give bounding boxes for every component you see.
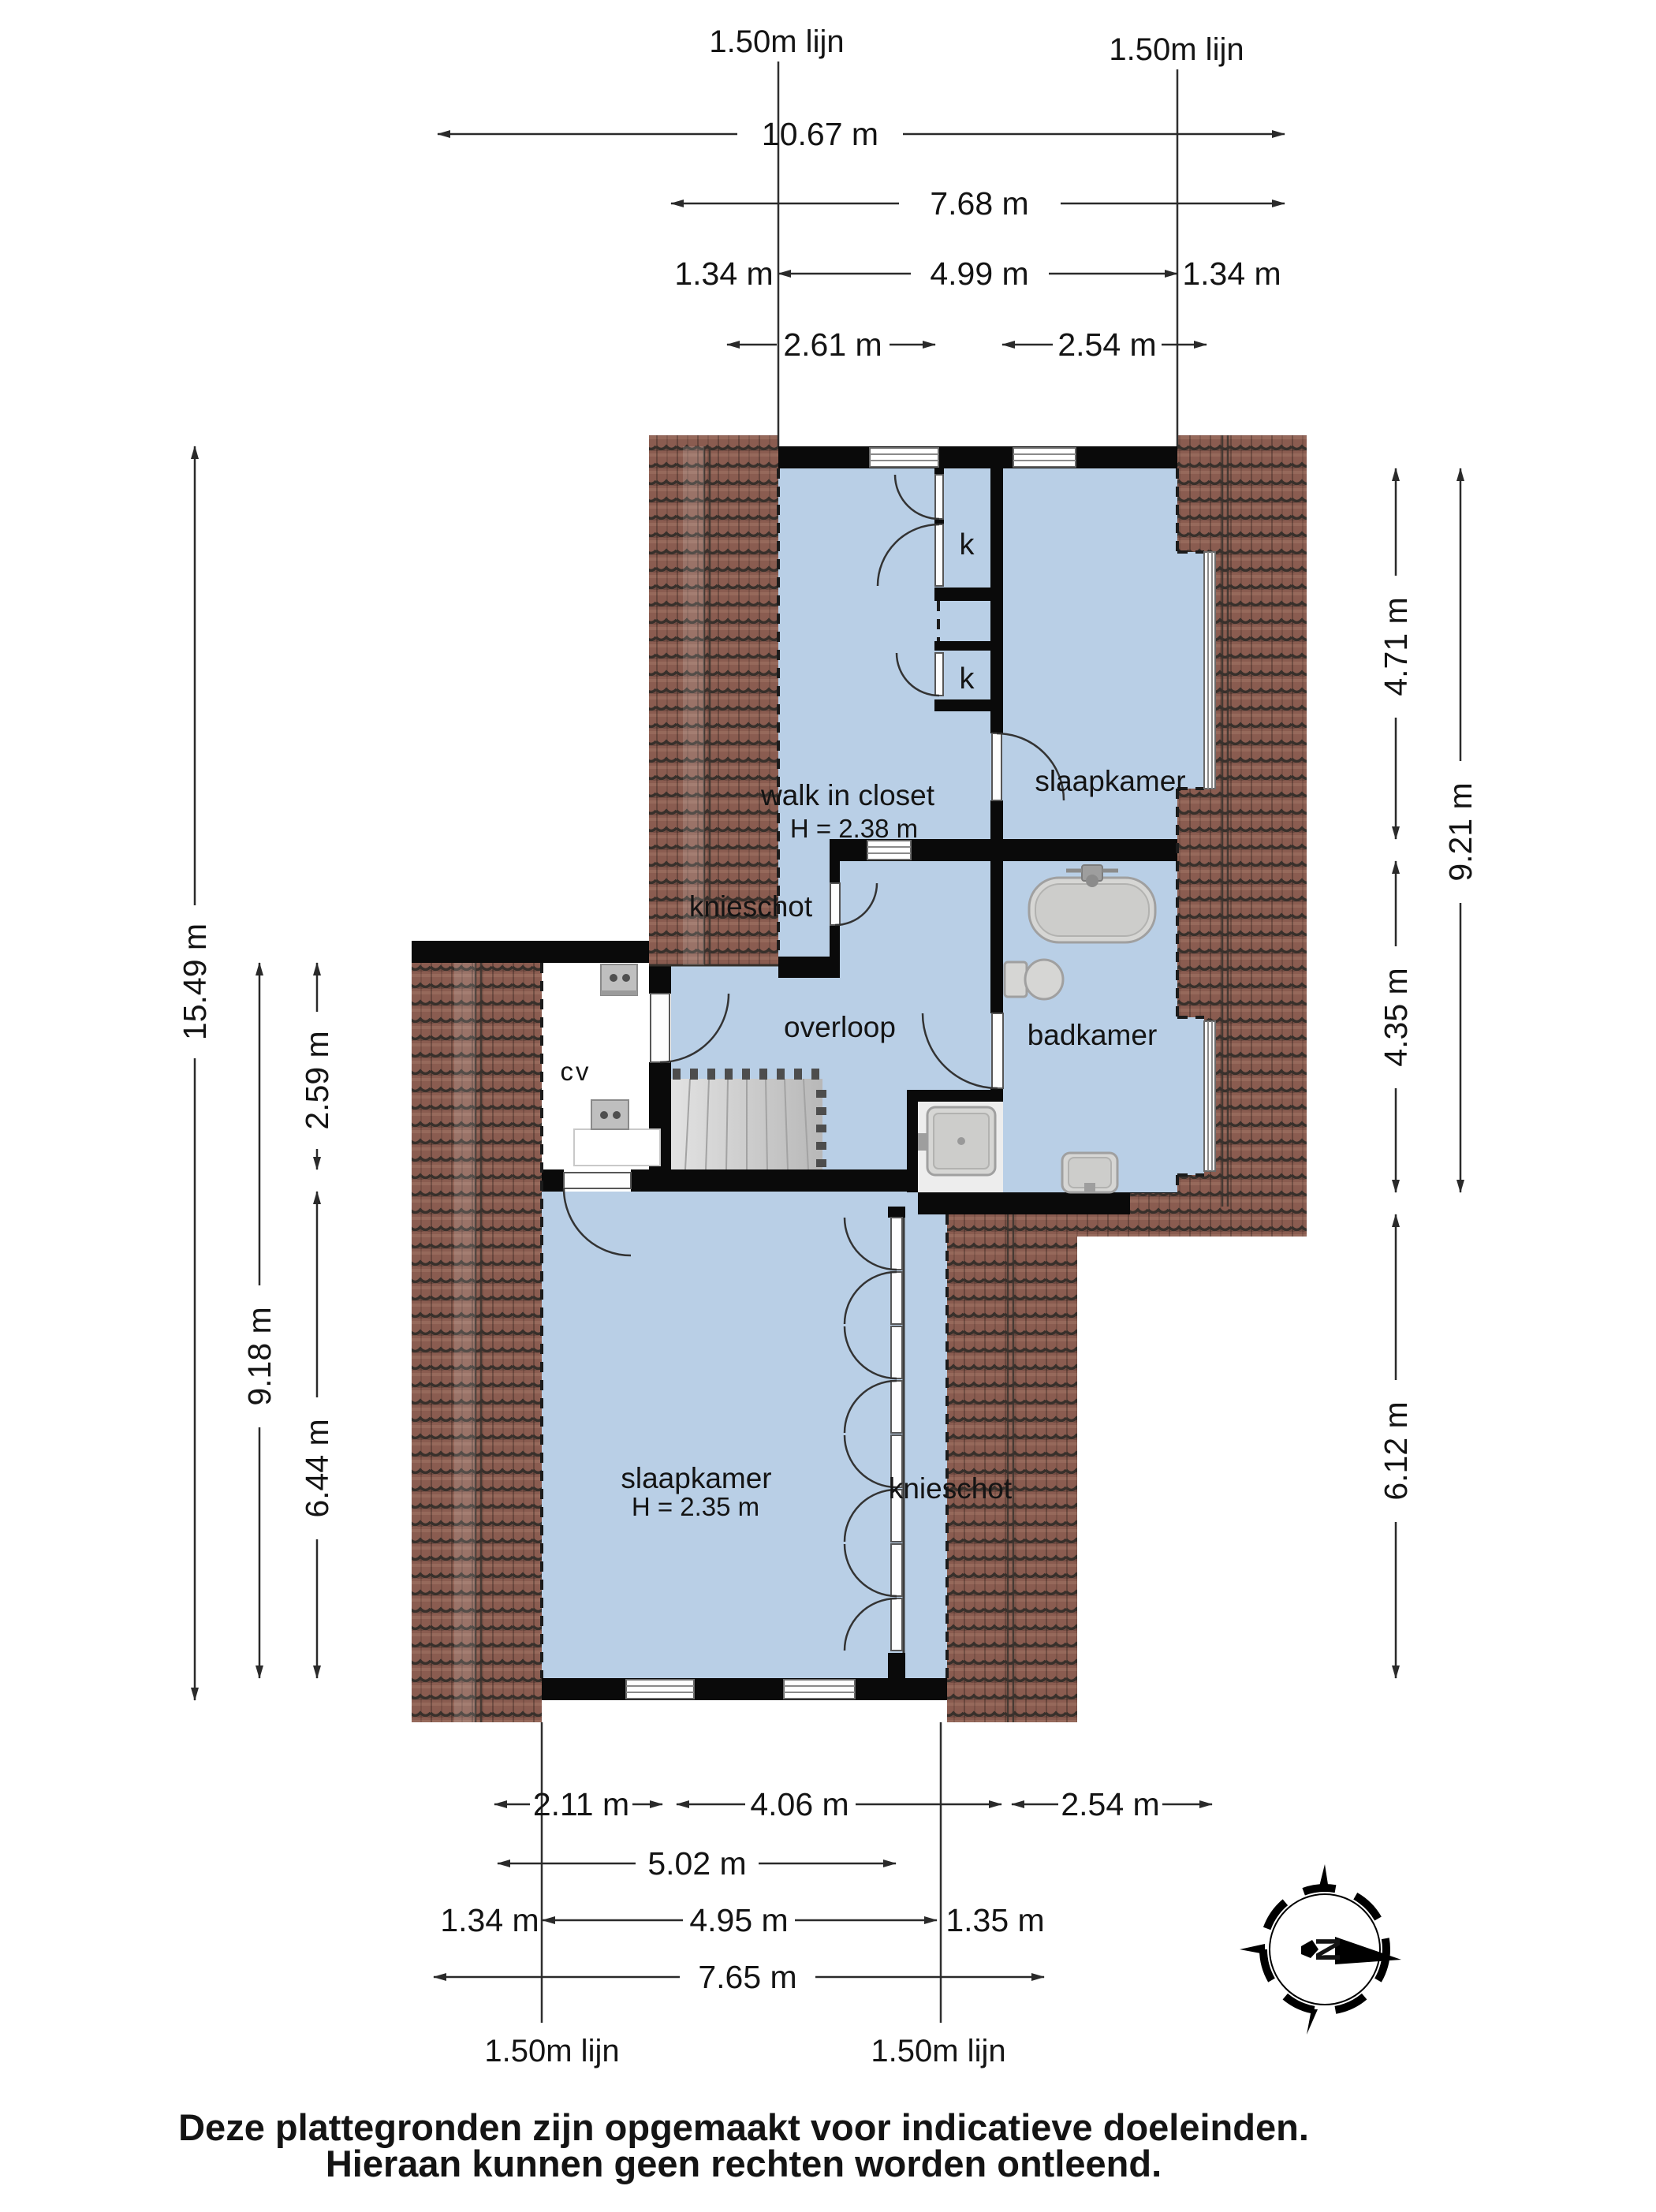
washbasin-tap	[1084, 1183, 1095, 1192]
kast-1-label: k	[960, 528, 975, 561]
wall-k1-bottom	[934, 588, 990, 601]
dim-5-02: 5.02 m	[647, 1845, 746, 1882]
dim-2-61: 2.61 m	[783, 326, 882, 363]
ref-label-bottom-right: 1.50m lijn	[871, 2034, 1005, 2068]
slaapkamer-beneden-label: slaapkamer	[621, 1462, 771, 1494]
dim-6-12: 6.12 m	[1378, 1401, 1414, 1500]
window-dormer-slaapkamer	[1204, 552, 1215, 789]
slaapkamer-beneden-floor	[542, 1192, 947, 1678]
compass-spike-bottom	[1307, 2009, 1318, 2035]
wall-cv-right-a	[649, 963, 671, 994]
dimensions-left: 15.49 m 9.18 m 2.59 m 6.44 m	[177, 446, 335, 1700]
cv-unit-1-dot	[610, 974, 617, 982]
dim-9-18: 9.18 m	[241, 1307, 278, 1405]
wall-knieschot-bottom	[778, 957, 834, 978]
walkincloset-height-label: H = 2.38 m	[790, 814, 918, 843]
knieschot-boven-label: knieschot	[689, 890, 813, 923]
notch-floor-slaapkamer	[1177, 552, 1204, 789]
compass-rose: N	[1240, 1864, 1401, 2035]
window-dormer-badkamer	[1204, 1021, 1215, 1171]
dim-2-54-top: 2.54 m	[1057, 326, 1156, 363]
door-k2	[935, 653, 943, 696]
dim-9-21: 9.21 m	[1442, 782, 1479, 881]
cv-unit-2-dot	[600, 1111, 608, 1119]
wall-cv-bottom-b	[631, 1169, 918, 1192]
roof-upper-left	[649, 435, 778, 966]
wall-k2-bottom	[934, 699, 990, 711]
badkamer-label: badkamer	[1028, 1019, 1158, 1051]
window-bottom-1	[626, 1680, 694, 1699]
window-closet	[867, 841, 911, 860]
dimensions-top: 10.67 m 7.68 m 1.34 m 4.99 m 1.34 m 2.61…	[438, 116, 1285, 363]
toilet-tank	[1005, 962, 1027, 997]
roof-bad-bottom-band2	[1130, 1193, 1307, 1214]
dim-15-49: 15.49 m	[177, 923, 213, 1040]
door-cv	[651, 994, 669, 1062]
floorplan-drawing: walk in closet H = 2.38 m slaapkamer kni…	[0, 0, 1656, 2208]
wall-central-mid	[990, 800, 1003, 1013]
roof-highlight-ext	[454, 963, 476, 1722]
door-k1a	[935, 475, 943, 519]
wall-closetrow-bottom	[888, 1653, 905, 1678]
notch-floor-badkamer	[1177, 1017, 1204, 1175]
disclaimer: Deze plattegronden zijn opgemaakt voor i…	[178, 2106, 1309, 2184]
dim-2-11: 2.11 m	[533, 1786, 629, 1822]
cv-unit-1-band	[601, 990, 637, 995]
window-bottom-2	[784, 1680, 855, 1699]
roof-highlight-left	[683, 446, 704, 965]
wall-slaap-bad-divider	[1003, 839, 1177, 861]
dim-7-65: 7.65 m	[698, 1959, 796, 1995]
wall-nook-b	[830, 925, 840, 978]
wall-shower-top	[907, 1090, 1003, 1102]
cv-counter	[574, 1129, 660, 1166]
dim-4-99: 4.99 m	[930, 256, 1028, 292]
wall-nook-a	[830, 861, 840, 883]
disclaimer-line-2: Hieraan kunnen geen rechten worden ontle…	[326, 2143, 1162, 2184]
ref-label-bottom-left: 1.50m lijn	[484, 2034, 619, 2068]
overloop-label: overloop	[784, 1011, 896, 1043]
compass-spike-left	[1240, 1944, 1265, 1954]
window-top-1	[870, 448, 938, 467]
dim-6-44: 6.44 m	[299, 1419, 335, 1517]
knieschot-beneden-label: knieschot	[889, 1472, 1013, 1505]
wall-central-upper	[990, 446, 1003, 733]
floorplan-page: walk in closet H = 2.38 m slaapkamer kni…	[0, 0, 1656, 2208]
toilet-bowl	[1025, 960, 1063, 999]
dimensions-bottom: 2.11 m 4.06 m 2.54 m 5.02 m 1.34 m 4.95 …	[434, 1786, 1212, 1995]
window-top-2	[1013, 448, 1076, 467]
dim-1-35: 1.35 m	[945, 1902, 1044, 1938]
bathtub-inner	[1035, 884, 1149, 936]
wall-ext-top	[412, 941, 671, 963]
ref-label-top-right: 1.50m lijn	[1109, 32, 1244, 67]
dim-2-59: 2.59 m	[299, 1031, 335, 1129]
compass-spike-top	[1318, 1864, 1329, 1889]
cv-unit-1-dot2	[622, 974, 630, 982]
dim-4-35: 4.35 m	[1378, 968, 1414, 1066]
dim-1-34-bottom: 1.34 m	[440, 1902, 539, 1938]
roof-ext-left	[412, 963, 542, 1722]
cv-label: cv	[561, 1057, 591, 1086]
dim-1-34-right: 1.34 m	[1182, 256, 1281, 292]
roof-bad-bottom-band	[1055, 1214, 1307, 1237]
dimensions-right: 4.71 m 9.21 m 4.35 m 6.12 m	[1378, 468, 1479, 1678]
cv-unit-2-dot2	[613, 1111, 621, 1119]
door-walkincloset	[830, 883, 840, 925]
door-slaapkamer-boven	[992, 733, 1001, 800]
roof-lower-right	[947, 1214, 1077, 1722]
dim-4-71: 4.71 m	[1378, 597, 1414, 696]
cv-unit-2	[591, 1100, 628, 1129]
wall-k2-top	[934, 641, 990, 651]
walkincloset-label: walk in closet	[760, 779, 935, 811]
door-badkamer	[992, 1013, 1003, 1088]
slaapkamer-beneden-height-label: H = 2.35 m	[632, 1492, 759, 1521]
shower-faucet	[918, 1133, 927, 1151]
door-k1b	[935, 524, 943, 586]
wall-closetrow-top	[888, 1207, 905, 1218]
ref-label-top-left: 1.50m lijn	[709, 24, 844, 59]
dim-2-54-bottom: 2.54 m	[1061, 1786, 1159, 1822]
staircase	[671, 1069, 826, 1169]
dim-4-06: 4.06 m	[750, 1786, 849, 1822]
compass-north-letter: N	[1308, 1937, 1347, 1962]
shower-drain	[957, 1137, 965, 1145]
dim-10-67: 10.67 m	[762, 116, 878, 152]
bath-faucet-knob	[1086, 875, 1098, 887]
wall-shower-left	[907, 1102, 918, 1192]
slaapkamer-boven-label: slaapkamer	[1035, 765, 1185, 797]
kast-2-label: k	[960, 662, 975, 696]
dim-7-68: 7.68 m	[930, 185, 1028, 222]
dim-1-34-left: 1.34 m	[674, 256, 773, 292]
dim-4-95: 4.95 m	[689, 1902, 788, 1938]
door-slaapkamer-beneden	[564, 1173, 631, 1188]
